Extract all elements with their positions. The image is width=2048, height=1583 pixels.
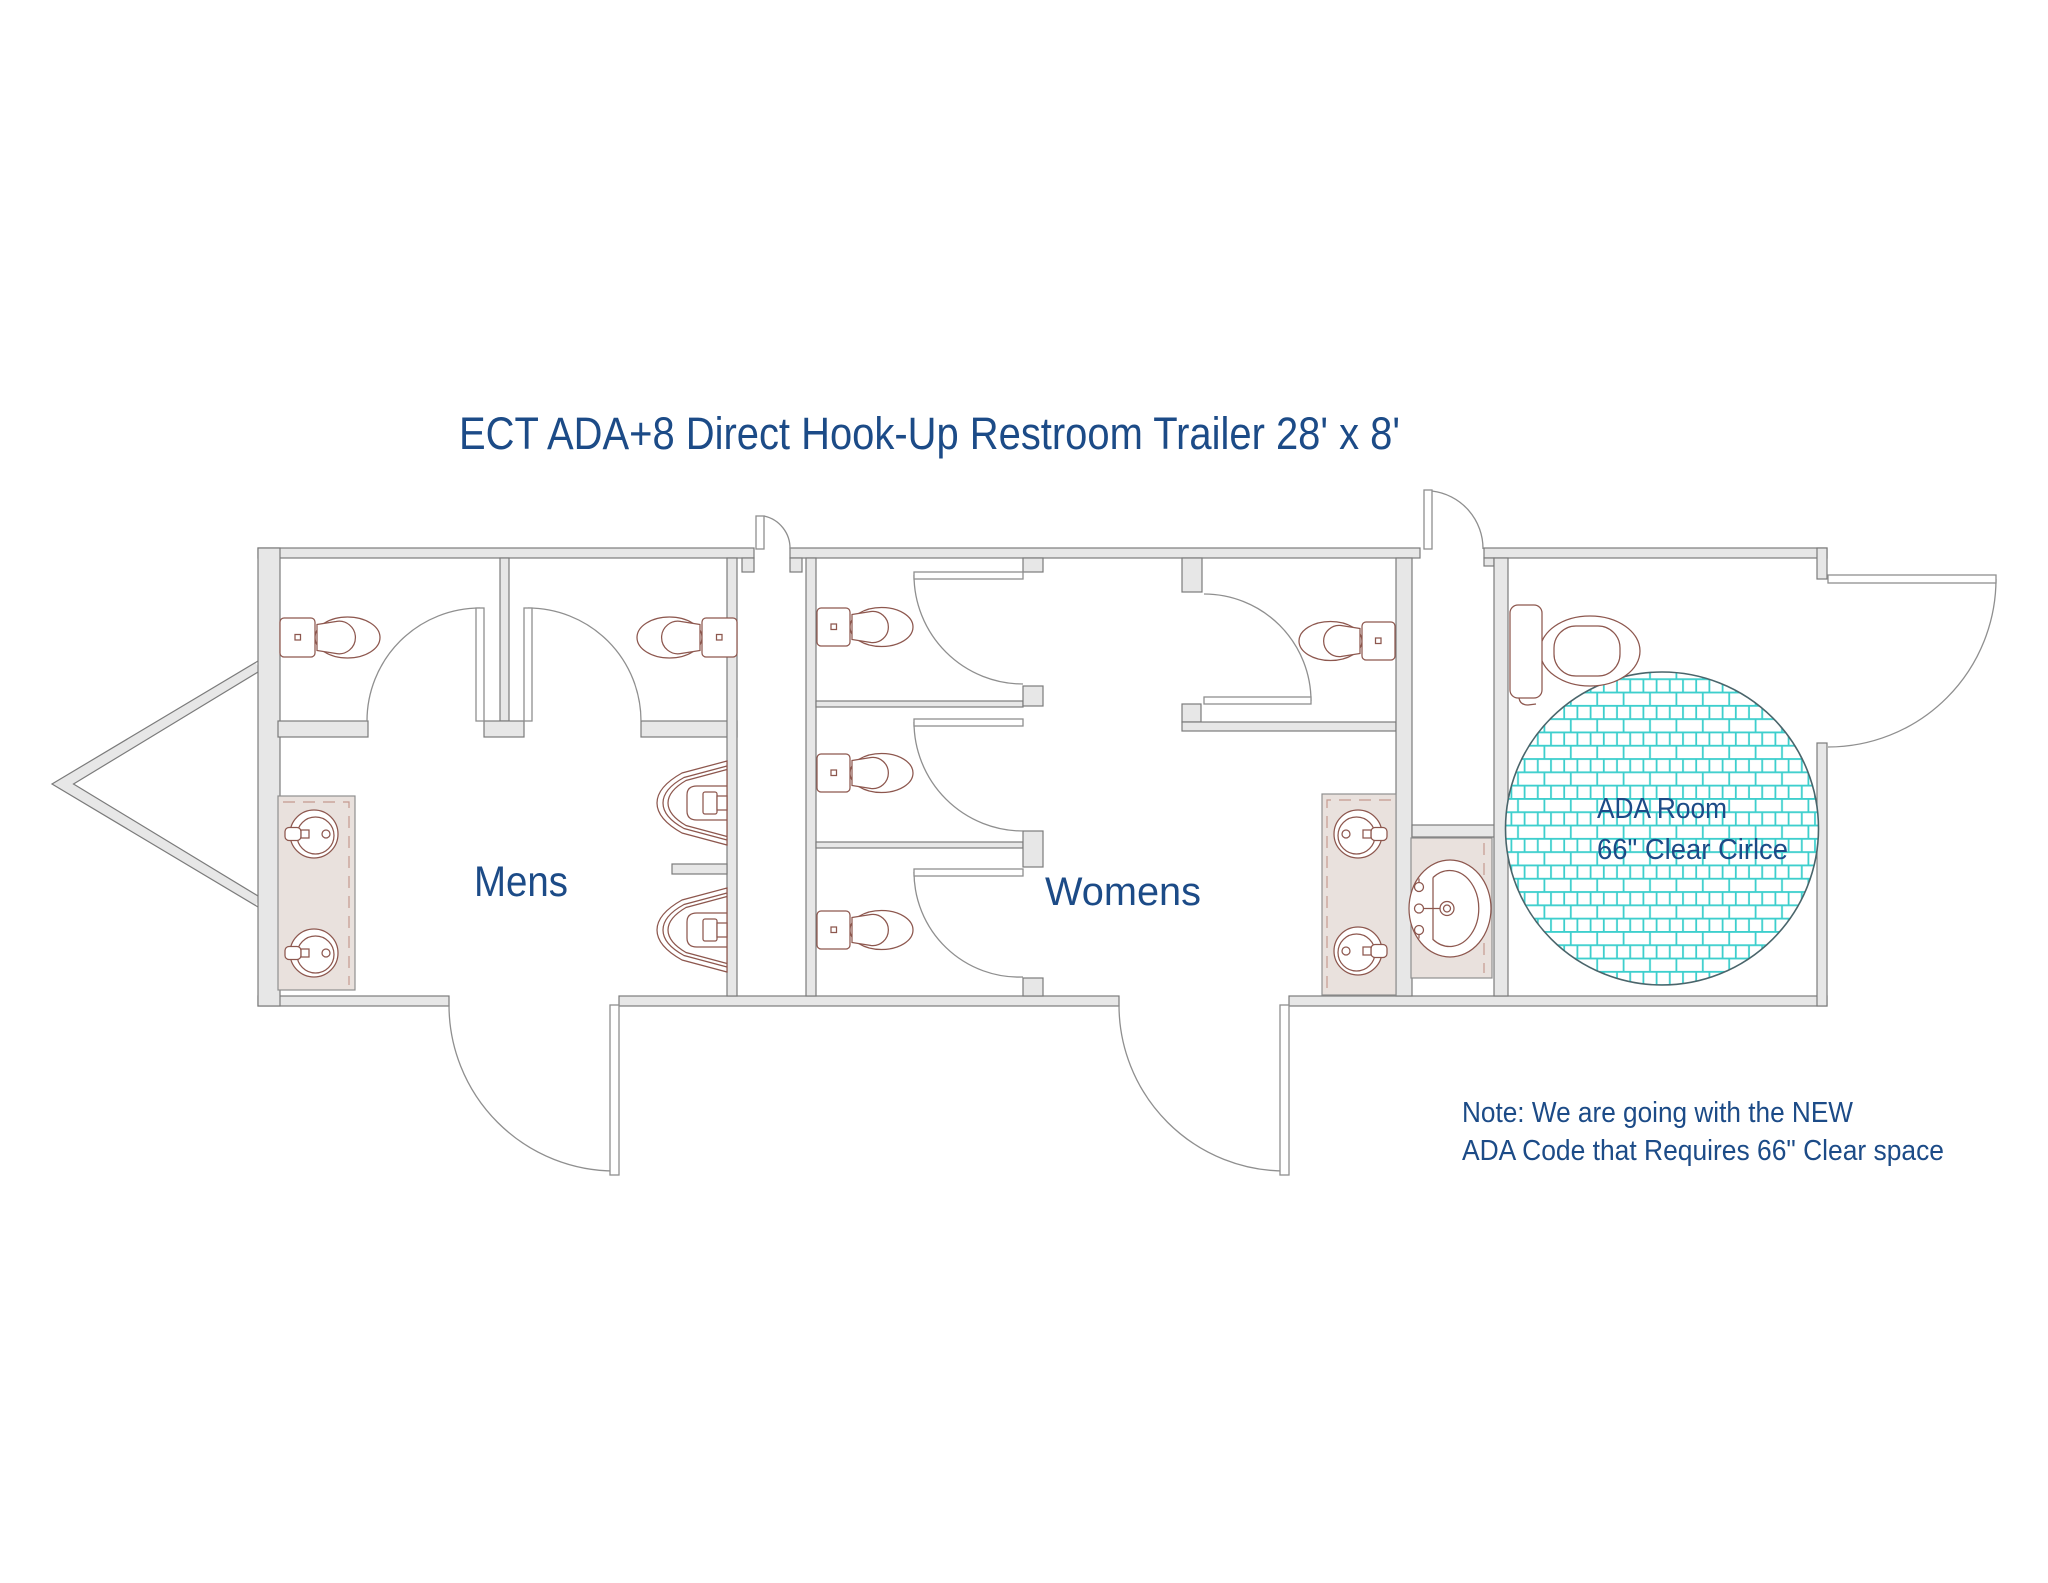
svg-text:Note: We are going with the NE: Note: We are going with the NEW: [1462, 1097, 1854, 1129]
svg-text:ADA Room: ADA Room: [1597, 793, 1727, 825]
svg-text:Womens: Womens: [1045, 870, 1201, 914]
svg-text:Mens: Mens: [474, 858, 568, 906]
svg-text:ADA Code that Requires 66" Cle: ADA Code that Requires 66" Clear space: [1462, 1135, 1944, 1167]
svg-text:66" Clear Cirlce: 66" Clear Cirlce: [1597, 834, 1788, 866]
svg-text:ECT ADA+8 Direct Hook-Up Restr: ECT ADA+8 Direct Hook-Up Restroom Traile…: [459, 408, 1400, 459]
